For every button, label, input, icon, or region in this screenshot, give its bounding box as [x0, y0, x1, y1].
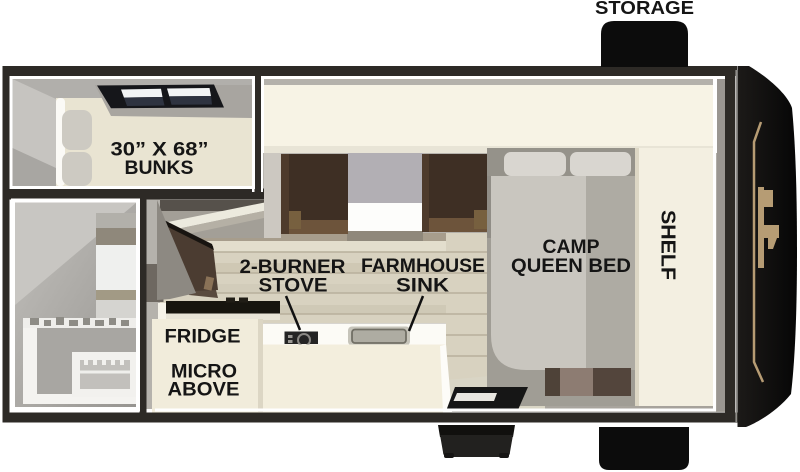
svg-text:FRIDGE: FRIDGE	[165, 327, 241, 348]
svg-text:SINK: SINK	[396, 276, 449, 297]
svg-text:FARMHOUSE: FARMHOUSE	[361, 256, 485, 277]
svg-text:QUEEN BED: QUEEN BED	[511, 256, 631, 277]
svg-text:ABOVE: ABOVE	[168, 380, 240, 401]
svg-text:STORAGE: STORAGE	[595, 0, 694, 18]
svg-text:SHELF: SHELF	[657, 210, 679, 280]
svg-text:STOVE: STOVE	[259, 276, 328, 297]
svg-text:BUNKS: BUNKS	[125, 158, 194, 179]
svg-text:CAMP: CAMP	[543, 237, 600, 258]
